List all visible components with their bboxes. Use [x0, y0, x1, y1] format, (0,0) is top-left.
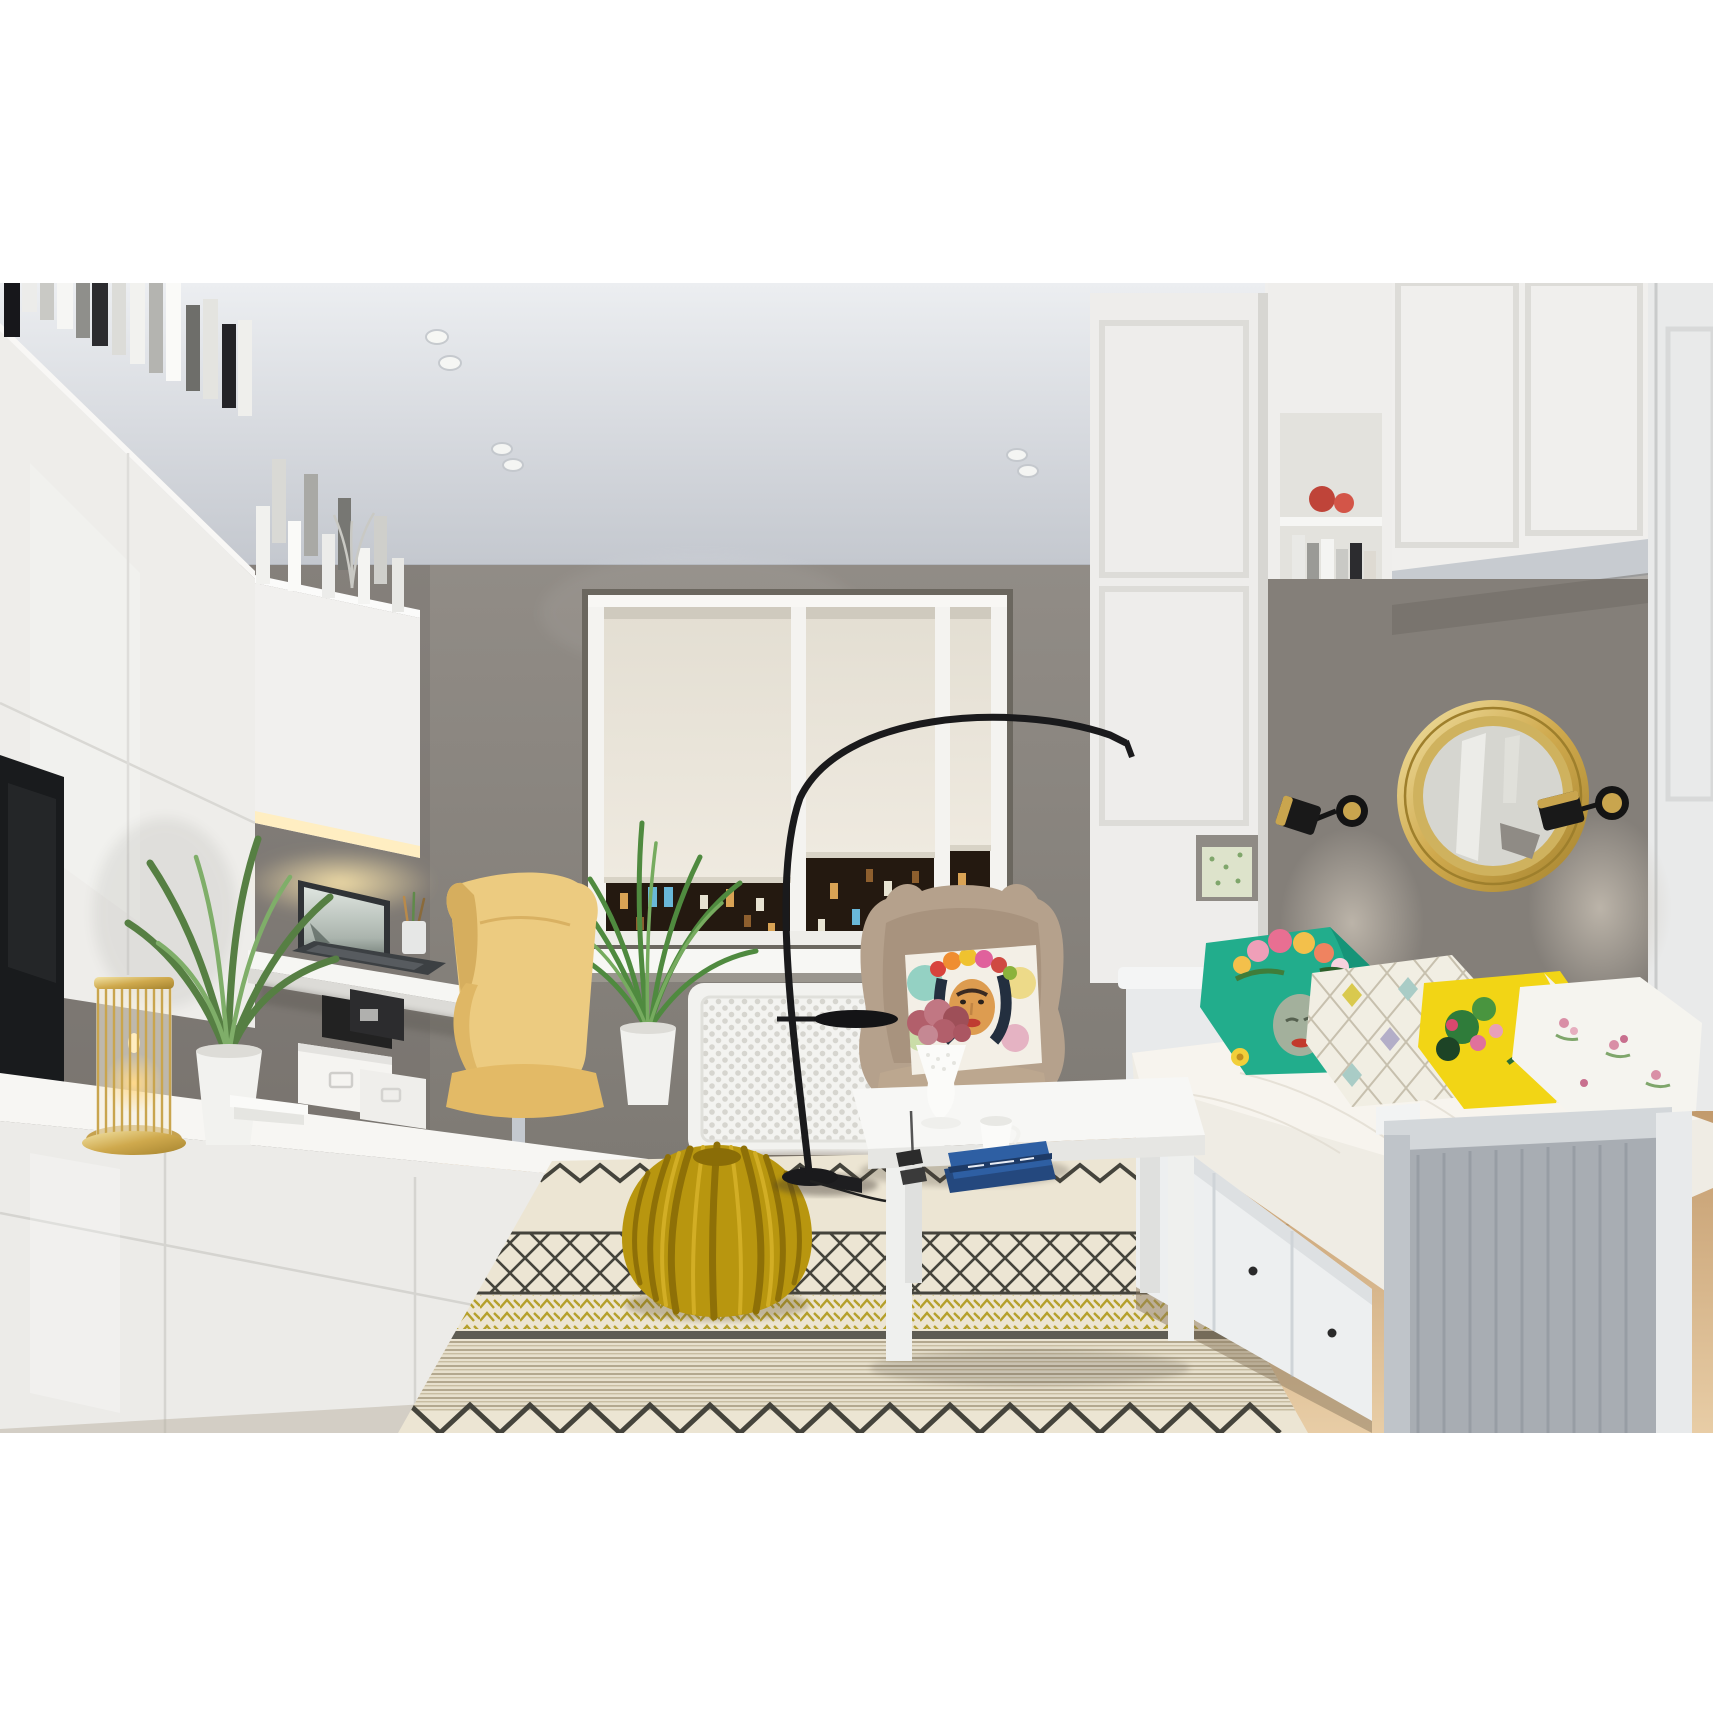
overbed-cabinets	[1265, 283, 1648, 623]
open-shelf	[1268, 283, 1392, 623]
page	[0, 0, 1713, 1713]
knitted-pouf	[622, 1145, 812, 1321]
pencil-cup	[402, 893, 426, 954]
bed-column-cabinet	[1090, 293, 1268, 983]
niche-floral-box	[1202, 847, 1252, 897]
room-photo	[0, 283, 1713, 1433]
tv	[0, 755, 64, 1121]
footboard	[1376, 1103, 1692, 1433]
candle-lantern	[82, 977, 186, 1155]
